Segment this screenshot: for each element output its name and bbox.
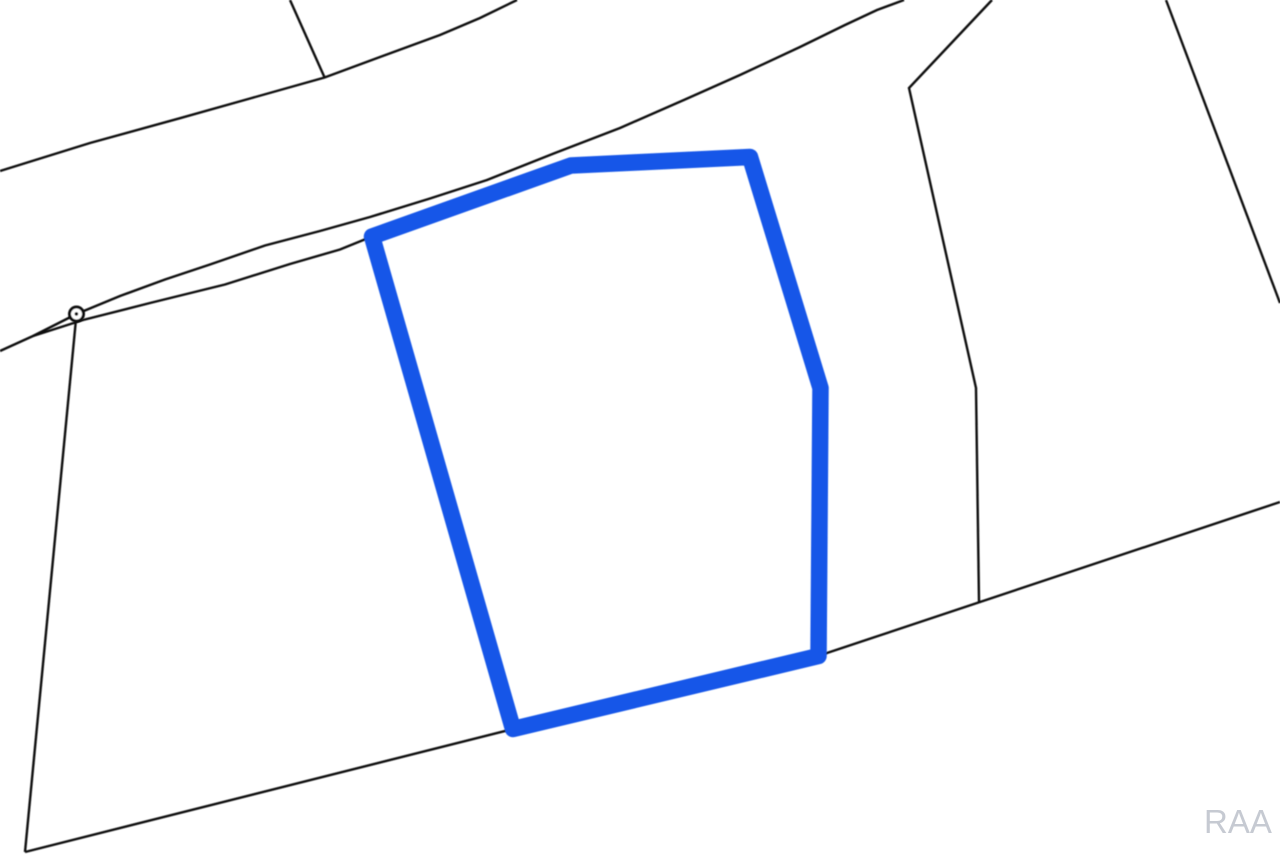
svg-text:RAA: RAA xyxy=(1204,803,1272,840)
